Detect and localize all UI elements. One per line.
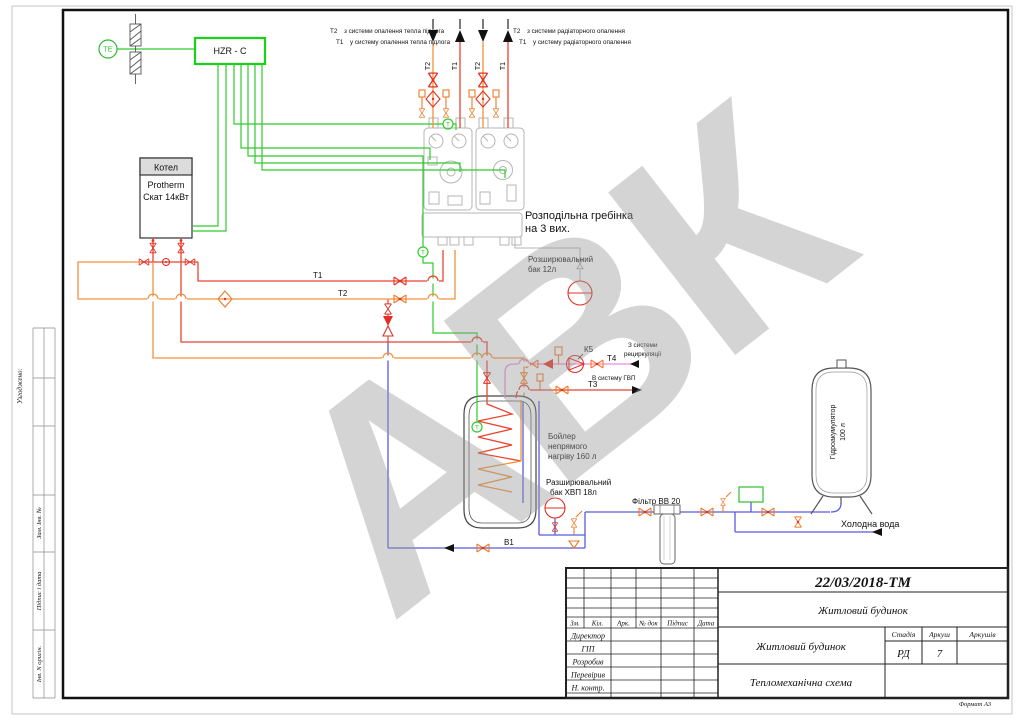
legend-code: Т2: [513, 28, 521, 35]
riser-label: Т1: [452, 62, 459, 70]
pipe-label-t2: Т2: [338, 289, 348, 298]
tb-sheets-label: Аркушів: [968, 630, 996, 639]
exp18-label: Разширювальний: [546, 478, 611, 487]
filter-bb20-body: [654, 505, 680, 564]
hzr-label: HZR - C: [214, 46, 247, 56]
riser-valve-group: [469, 73, 499, 117]
format-note: Формат А3: [959, 701, 992, 708]
strip-cell-label: Інв. N оригін.: [36, 645, 43, 683]
pipe-label-t4: Т4: [607, 354, 617, 363]
distribution-manifold: [422, 213, 522, 237]
exp12-label: Розширювальний: [528, 255, 593, 264]
check-valve-icon: [383, 316, 393, 326]
pump-station: [422, 118, 524, 245]
riser-valve-group: [419, 73, 449, 117]
tb-doc-code: 22/03/2018-ТМ: [814, 575, 911, 591]
tb-doc-title: Тепломеханічна схема: [750, 677, 853, 689]
tb-object: Житловий будинок: [755, 641, 847, 653]
filter-label: Фільтр ВВ 20: [632, 497, 681, 506]
riser-label: Т1: [500, 62, 507, 70]
legend-code: Т1: [336, 39, 344, 46]
cold-water-piping: [388, 401, 882, 564]
flow-in-arrow-icon: [478, 30, 488, 42]
recirc-arrow-icon: [630, 360, 639, 368]
tb-sheet-label: Аркуш: [928, 630, 950, 639]
boiler-label: нагріву 160 л: [548, 452, 597, 461]
exp18-label: бак ХВП 18л: [550, 488, 597, 497]
manifold-label: Розподільна гребінка: [525, 210, 634, 222]
cold-water-arrow-icon: [872, 528, 882, 536]
tb-role: Розробив: [571, 658, 604, 667]
heating-pipes: [78, 250, 528, 548]
tb-object-top: Житловий будинок: [817, 605, 909, 617]
legend-code: Т2: [330, 28, 338, 35]
boiler-label: непрямого: [548, 442, 588, 451]
flow-out-arrow-icon: [455, 30, 465, 42]
tb-col: № док: [638, 620, 658, 628]
cold-water-label: Холодна вода: [841, 519, 899, 529]
kotel-brand: Protherm: [147, 180, 184, 190]
tb-col: Кіл.: [591, 620, 604, 628]
tb-col: Арк.: [616, 620, 630, 628]
strip-cell-label: Підпис і дата: [36, 572, 43, 612]
tb-col: Зм.: [570, 620, 580, 628]
tb-role: Директор: [570, 632, 605, 641]
hydro-label: 100 л: [840, 423, 847, 441]
te-sensor-label: TE: [104, 47, 113, 54]
tb-role: Перевірив: [570, 671, 606, 680]
hydro-label: Гідроакумулятор: [829, 405, 837, 460]
check-valve-icon: [543, 359, 553, 369]
recirc-label: рециркуляції: [624, 350, 662, 358]
temp-sensor-icon: Т: [421, 251, 425, 257]
boiler-temp-sensor: Т: [472, 422, 482, 432]
legend-text: у систему радіаторного опалення: [533, 38, 631, 46]
manifold-label: на 3 вих.: [525, 223, 570, 235]
pipe-label-v1: В1: [504, 538, 514, 547]
gvp-arrow-icon: [632, 386, 642, 394]
drain-funnel-icon: [569, 541, 579, 548]
indirect-boiler-tank: [464, 396, 536, 528]
exp12-label: бак 12л: [528, 265, 556, 274]
system-risers: Т2 Т1 Т2 Т1: [419, 19, 513, 128]
labels: Т2 з системи опалення тепла підлога Т1 у…: [313, 27, 899, 547]
legend-text: у систему опалення тепла підлога: [350, 38, 451, 46]
approved-label: Узгоджено:: [16, 368, 24, 404]
recirc-label: З системи: [628, 342, 658, 349]
hzr-controller: HZR - C: [195, 38, 265, 64]
boiler-label: Бойлер: [548, 432, 576, 441]
schematic-canvas: Узгоджено: Зам. Інв. № Підпис і дата Інв…: [0, 0, 1024, 723]
tb-stage-value: РД: [896, 648, 911, 660]
riser-label: Т2: [425, 62, 432, 70]
tb-stage-label: Стадія: [892, 630, 916, 639]
tb-role: ГІП: [581, 645, 596, 654]
drawing-sheet: Узгоджено: Зам. Інв. № Підпис і дата Інв…: [0, 0, 1024, 723]
margin-strip-labels: Узгоджено: Зам. Інв. № Підпис і дата Інв…: [16, 368, 43, 683]
legend-text: з системи радіаторного опалення: [527, 27, 625, 35]
kotel-title: Котел: [154, 163, 178, 173]
strip-cell-label: Зам. Інв. №: [36, 507, 43, 538]
title-block: Зм. Кіл. Арк. № док Підпис Дата Директор…: [566, 568, 1008, 708]
expansion-tank-12: [568, 281, 592, 305]
air-vent-icon: [537, 374, 543, 381]
flow-out-arrow-icon: [503, 30, 513, 42]
air-vent-icon: [555, 347, 562, 355]
pipe-label-k5: К5: [584, 345, 594, 354]
pipe-label-t1: Т1: [313, 271, 323, 280]
temp-sensor-icon: Т: [475, 426, 479, 432]
pressure-switch: [739, 487, 763, 502]
legend-text: з системи опалення тепла підлога: [344, 27, 445, 35]
gvp-label: В систему ГВП: [592, 375, 636, 382]
tb-role: Н. контр.: [571, 684, 605, 693]
kotel-model: Скат 14кВт: [143, 192, 189, 202]
temp-sensor-icon: Т: [446, 123, 450, 129]
outdoor-sensor: TE: [99, 14, 195, 84]
v1-arrow-icon: [444, 544, 454, 552]
kotel-unit: Котел Protherm Скат 14кВт: [139, 158, 198, 266]
tb-col: Дата: [697, 620, 715, 628]
legend-code: Т1: [519, 39, 527, 46]
riser-label: Т2: [475, 62, 482, 70]
tb-sheet-value: 7: [937, 648, 943, 660]
tb-col: Підпис: [666, 620, 689, 628]
